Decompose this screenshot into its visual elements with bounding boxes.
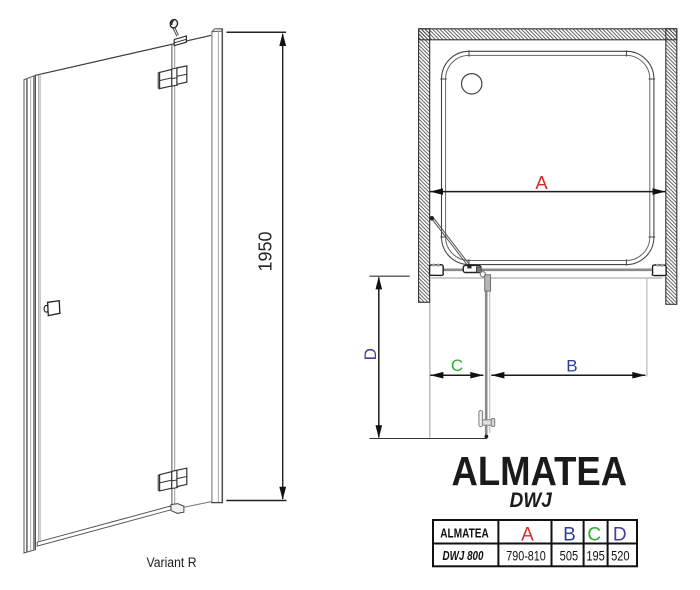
svg-text:A: A	[535, 172, 548, 193]
svg-text:1950: 1950	[255, 231, 275, 271]
svg-text:DWJ 800: DWJ 800	[443, 550, 485, 563]
svg-text:C: C	[587, 525, 601, 546]
svg-text:520: 520	[611, 547, 629, 564]
svg-text:790-810: 790-810	[506, 548, 546, 564]
svg-text:DWJ: DWJ	[510, 489, 553, 512]
svg-text:505: 505	[560, 547, 578, 564]
svg-text:D: D	[361, 348, 380, 360]
svg-text:ALMATEA: ALMATEA	[440, 528, 488, 541]
svg-text:B: B	[563, 525, 576, 546]
svg-text:A: A	[521, 525, 534, 546]
svg-text:ALMATEA: ALMATEA	[451, 449, 627, 494]
svg-text:195: 195	[586, 547, 604, 564]
svg-text:C: C	[451, 356, 463, 375]
svg-text:D: D	[613, 525, 627, 546]
svg-text:B: B	[566, 357, 577, 376]
svg-text:Variant R: Variant R	[146, 555, 196, 571]
